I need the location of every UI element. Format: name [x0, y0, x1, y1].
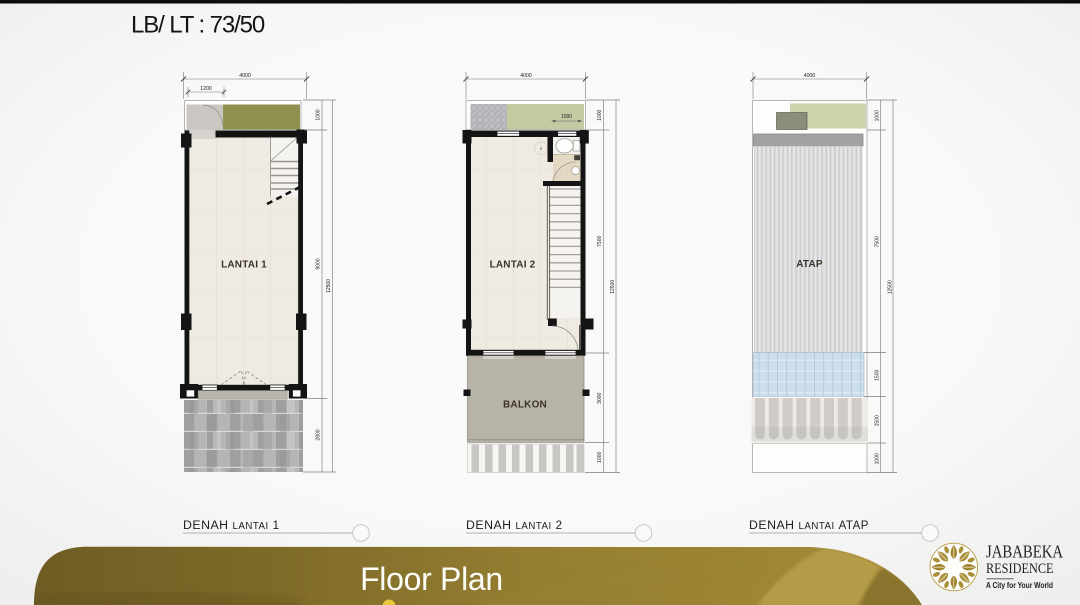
- svg-text:12500: 12500: [326, 279, 332, 293]
- svg-text:1000: 1000: [875, 453, 881, 464]
- svg-text:Floor Plan: Floor Plan: [360, 561, 503, 597]
- svg-text:1200: 1200: [200, 86, 212, 92]
- svg-text:4000: 4000: [520, 73, 532, 79]
- svg-text:12500: 12500: [610, 280, 616, 294]
- svg-text:7500: 7500: [875, 236, 881, 247]
- svg-text:1000: 1000: [561, 114, 572, 120]
- svg-text:LANTAI 1: LANTAI 1: [221, 260, 267, 271]
- svg-text:BALKON: BALKON: [503, 400, 547, 411]
- svg-text:ATAP: ATAP: [796, 259, 823, 270]
- svg-text:9000: 9000: [315, 258, 321, 269]
- svg-text:1000: 1000: [597, 452, 603, 463]
- svg-text:A City for Your World: A City for Your World: [986, 580, 1053, 590]
- svg-text:4000: 4000: [804, 73, 816, 79]
- svg-text:DENAH LANTAI ATAP: DENAH LANTAI ATAP: [749, 518, 869, 532]
- svg-text:DENAH LANTAI 1: DENAH LANTAI 1: [183, 518, 280, 532]
- svg-text:2800: 2800: [315, 429, 321, 440]
- svg-text:RESIDENCE: RESIDENCE: [986, 561, 1054, 577]
- svg-text:7500: 7500: [597, 236, 603, 247]
- svg-text:LANTAI 2: LANTAI 2: [490, 260, 536, 271]
- svg-text:DENAH LANTAI 2: DENAH LANTAI 2: [466, 518, 563, 532]
- svg-text:1000: 1000: [875, 110, 881, 121]
- svg-text:3000: 3000: [597, 393, 603, 404]
- svg-text:4000: 4000: [239, 73, 251, 79]
- svg-text:1000: 1000: [315, 109, 321, 120]
- svg-text:1500: 1500: [875, 415, 881, 426]
- svg-text:JABABEKA: JABABEKA: [986, 542, 1063, 562]
- svg-text:LB/ LT : 73/50: LB/ LT : 73/50: [131, 12, 265, 39]
- svg-text:12500: 12500: [888, 280, 894, 294]
- svg-text:1500: 1500: [875, 370, 881, 381]
- svg-text:1000: 1000: [597, 110, 603, 121]
